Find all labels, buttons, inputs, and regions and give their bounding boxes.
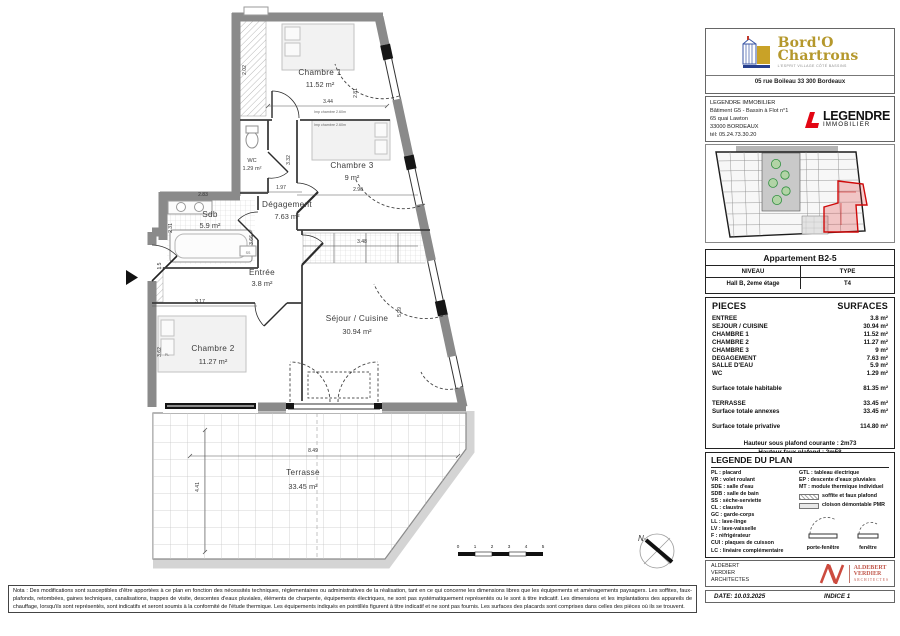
floor-plan-sheet: Chambre 1 11.52 m² Chambre 3 9 m² WC 1.2… bbox=[0, 0, 900, 636]
floor-plan-drawing: Chambre 1 11.52 m² Chambre 3 9 m² WC 1.2… bbox=[0, 0, 700, 636]
bordo-chartrons-logo-icon bbox=[742, 35, 772, 69]
porte-fenetre-label: porte-fenêtre bbox=[805, 545, 841, 551]
legendre-logo-icon bbox=[802, 109, 820, 129]
svg-text:1.97: 1.97 bbox=[276, 185, 286, 191]
svg-text:3.44: 3.44 bbox=[323, 99, 333, 105]
surface-row: ENTREE3.8 m² bbox=[712, 315, 888, 323]
surface-total-annexes: Surface totale annexes33.45 m² bbox=[712, 408, 888, 416]
apartment-niveau: Hall B, 2eme étage bbox=[706, 278, 800, 289]
svg-text:3.66: 3.66 bbox=[249, 235, 255, 245]
svg-text:3.62: 3.62 bbox=[157, 347, 163, 357]
soffite-swatch bbox=[799, 494, 819, 500]
apartment-table: Appartement B2-5 NIVEAU TYPE Hall B, 2em… bbox=[705, 249, 895, 294]
legend-item: GC : garde-corps bbox=[711, 512, 799, 519]
architect-box: ALDEBERT VERDIER ARCHITECTES ALDEBERT VE… bbox=[705, 560, 895, 587]
legend-item: CUI : plaques de cuisson bbox=[711, 540, 799, 547]
svg-text:3.17: 3.17 bbox=[195, 299, 205, 305]
developer-line3: 65 quai Lawton bbox=[710, 115, 802, 123]
surface-row: SALLE D'EAU5.9 m² bbox=[712, 362, 888, 370]
svg-text:2.02: 2.02 bbox=[242, 65, 248, 75]
surface-total-privative: Surface totale privative114.80 m² bbox=[712, 423, 888, 431]
room-area-degagement: 7.63 m² bbox=[274, 212, 300, 221]
svg-text:2.90: 2.90 bbox=[353, 187, 363, 193]
svg-text:5: 5 bbox=[542, 544, 545, 549]
room-area-chambre2: 11.27 m² bbox=[199, 357, 228, 366]
surfaces-header-surfaces: SURFACES bbox=[837, 301, 888, 311]
room-label-entree: Entrée bbox=[249, 268, 275, 277]
furniture bbox=[158, 24, 398, 398]
brand-box: Bord'O Chartrons L'ESPRIT VILLAGE CÔTÉ B… bbox=[705, 28, 895, 94]
surfaces-header-pieces: PIECES bbox=[712, 301, 746, 311]
legend-swatch1-label: soffite et faux plafond bbox=[822, 493, 877, 500]
legend-swatch2-label: cloison démontable PMR bbox=[822, 502, 885, 509]
room-label-chambre2: Chambre 2 bbox=[191, 344, 234, 353]
legend-item: VR : volet roulant bbox=[711, 477, 799, 484]
developer-box: LEGENDRE IMMOBILIER Bâtiment G5 - Bassin… bbox=[705, 96, 895, 142]
svg-text:Imp chambre 2.60m: Imp chambre 2.60m bbox=[314, 110, 346, 114]
svg-text:Imp chambre 2.60m: Imp chambre 2.60m bbox=[314, 123, 346, 127]
legend-item: EP : descente d'eaux pluviales bbox=[799, 477, 889, 484]
apartment-type: T4 bbox=[800, 278, 894, 289]
legend-title: LEGENDE DU PLAN bbox=[711, 455, 889, 468]
svg-text:4.41: 4.41 bbox=[195, 482, 201, 492]
surfaces-table: PIECES SURFACES ENTREE3.8 m² SEJOUR / CU… bbox=[705, 297, 895, 449]
room-label-chambre3: Chambre 3 bbox=[330, 161, 373, 170]
legend-box: LEGENDE DU PLAN PL : placard VR : volet … bbox=[705, 452, 895, 558]
date-indice-bar: DATE: 10.03.2025 INDICE 1 bbox=[705, 590, 895, 603]
svg-text:8.49: 8.49 bbox=[308, 448, 318, 454]
architect-logo-divider bbox=[849, 565, 850, 583]
nota-text: Nota : Des modifications sont susceptibl… bbox=[13, 588, 692, 612]
architect-line3: ARCHITECTES bbox=[711, 577, 819, 584]
developer-line5: tél: 05.24.73.30.20 bbox=[710, 131, 802, 139]
surface-row: SEJOUR / CUISINE30.94 m² bbox=[712, 323, 888, 331]
room-area-chambre1: 11.52 m² bbox=[306, 80, 335, 89]
legend-item: SDE : salle d'eau bbox=[711, 484, 799, 491]
room-area-terrasse: 33.45 m² bbox=[288, 482, 318, 491]
architect-line2: VERDIER bbox=[711, 570, 819, 577]
label-ss: SS bbox=[246, 251, 251, 255]
nota-box: Nota : Des modifications sont susceptibl… bbox=[8, 585, 697, 613]
surface-row: WC1.29 m² bbox=[712, 370, 888, 378]
surface-terrasse: TERRASSE33.45 m² bbox=[712, 400, 888, 408]
legend-item: SS : sèche-serviette bbox=[711, 498, 799, 505]
apartment-title: Appartement B2-5 bbox=[706, 250, 894, 266]
developer-line4: 33000 BORDEAUX bbox=[710, 123, 802, 131]
surface-total-habitable: Surface totale habitable81.35 m² bbox=[712, 385, 888, 393]
developer-line2: Bâtiment G5 - Bassin à Flot n°1 bbox=[710, 107, 802, 115]
ceiling-height-note1: Hauteur sous plafond courante : 2m73 bbox=[712, 439, 888, 448]
architect-logo-line3: ARCHITECTES bbox=[854, 578, 889, 582]
room-label-sdb: Sdb bbox=[202, 210, 218, 219]
room-area-entree: 3.8 m² bbox=[252, 279, 273, 288]
date-label: DATE: 10.03.2025 bbox=[706, 593, 824, 600]
room-area-sdb: 5.9 m² bbox=[200, 221, 221, 230]
roof-notch bbox=[244, 7, 268, 15]
surface-row: CHAMBRE 39 m² bbox=[712, 347, 888, 355]
legend-item: GTL : tableau électrique bbox=[799, 470, 889, 477]
fenetre-label: fenêtre bbox=[855, 545, 881, 551]
legend-item: LV : lave-vaisselle bbox=[711, 526, 799, 533]
legend-item: PL : placard bbox=[711, 470, 799, 477]
svg-text:1: 1 bbox=[474, 544, 477, 549]
indice-label: INDICE 1 bbox=[824, 593, 850, 600]
room-label-chambre1: Chambre 1 bbox=[298, 68, 341, 77]
svg-text:2: 2 bbox=[491, 544, 494, 549]
legend-item: F : réfrigérateur bbox=[711, 533, 799, 540]
brand-tagline: L'ESPRIT VILLAGE CÔTÉ BASSINS bbox=[778, 64, 859, 68]
scale-bar: 0 1 2 3 4 5 bbox=[457, 544, 545, 556]
legend-item: SDB : salle de bain bbox=[711, 491, 799, 498]
apartment-col-type: TYPE bbox=[800, 266, 894, 278]
legend-item: LL : lave-linge bbox=[711, 519, 799, 526]
north-arrow-icon: N bbox=[638, 534, 674, 568]
aldebert-verdier-monogram-icon bbox=[819, 564, 845, 584]
room-label-wc: WC bbox=[247, 158, 256, 164]
brand-address: 05 rue Boileau 33 300 Bordeaux bbox=[706, 75, 894, 85]
architect-line1: ALDEBERT bbox=[711, 563, 819, 570]
svg-text:3.32: 3.32 bbox=[286, 155, 292, 165]
brand-name-line2: Chartrons bbox=[778, 50, 859, 63]
developer-name: LEGENDRE IMMOBILIER bbox=[710, 99, 802, 107]
room-area-wc: 1.29 m² bbox=[243, 166, 262, 172]
entry-arrow-icon bbox=[126, 270, 138, 285]
room-label-sejour: Séjour / Cuisine bbox=[326, 314, 389, 323]
surface-row: DEGAGEMENT7.63 m² bbox=[712, 355, 888, 363]
svg-text:2.83: 2.83 bbox=[198, 192, 208, 198]
svg-text:1.5: 1.5 bbox=[157, 262, 163, 269]
room-area-sejour: 30.94 m² bbox=[342, 327, 372, 336]
legendre-logo-sub: IMMOBILIER bbox=[823, 122, 890, 128]
porte-fenetre-icon bbox=[805, 513, 841, 539]
svg-text:5.99: 5.99 bbox=[397, 307, 403, 317]
svg-text:0: 0 bbox=[457, 544, 460, 549]
legend-item: LC : linéaire complémentaire bbox=[711, 548, 799, 555]
apartment-col-niveau: NIVEAU bbox=[706, 266, 800, 278]
label-pl: PL bbox=[165, 353, 169, 357]
fenetre-icon bbox=[855, 513, 881, 539]
surface-row: CHAMBRE 111.52 m² bbox=[712, 331, 888, 339]
legend-item: MT : module thermique individuel bbox=[799, 484, 889, 491]
svg-text:2.81: 2.81 bbox=[353, 88, 359, 98]
svg-text:3.48: 3.48 bbox=[357, 239, 367, 245]
architect-logo-line1: ALDEBERT bbox=[854, 565, 889, 572]
room-label-degagement: Dégagement bbox=[262, 200, 312, 209]
svg-text:N: N bbox=[638, 534, 644, 543]
surface-row: CHAMBRE 211.27 m² bbox=[712, 339, 888, 347]
svg-text:4: 4 bbox=[525, 544, 528, 549]
site-plan-box bbox=[705, 144, 895, 243]
legend-item: CL : claustra bbox=[711, 505, 799, 512]
svg-text:2.31: 2.31 bbox=[168, 223, 174, 233]
cloison-swatch bbox=[799, 503, 819, 509]
svg-text:3: 3 bbox=[508, 544, 511, 549]
room-area-chambre3: 9 m² bbox=[345, 173, 360, 182]
architect-logo-line2: VERDIER bbox=[854, 571, 889, 578]
room-label-terrasse: Terrasse bbox=[286, 468, 320, 477]
site-plan-thumbnail bbox=[706, 145, 894, 242]
